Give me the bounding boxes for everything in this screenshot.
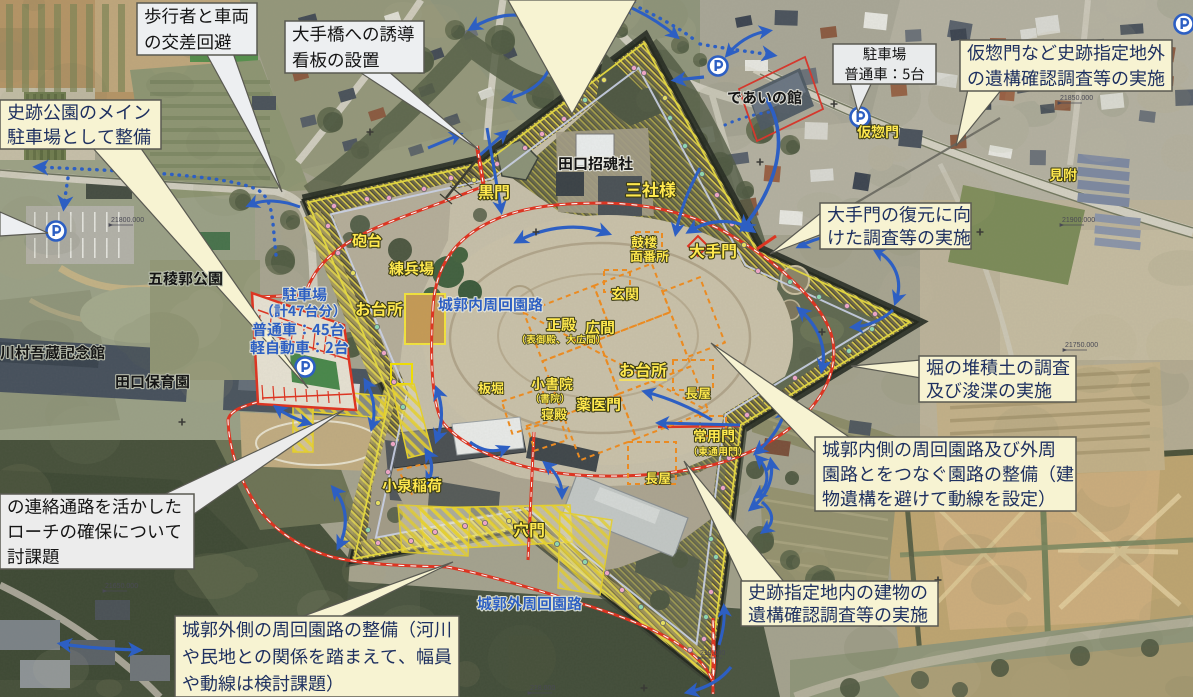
svg-text:21750.000: 21750.000 — [1065, 342, 1098, 349]
svg-text:21850.000: 21850.000 — [1060, 95, 1093, 102]
svg-text:21650.000: 21650.000 — [105, 583, 138, 590]
svg-text:218.000: 218.000 — [530, 685, 555, 692]
svg-text:219.000: 219.000 — [700, 650, 725, 657]
svg-text:21800.000: 21800.000 — [111, 217, 144, 224]
svg-text:21900.000: 21900.000 — [1062, 217, 1095, 224]
